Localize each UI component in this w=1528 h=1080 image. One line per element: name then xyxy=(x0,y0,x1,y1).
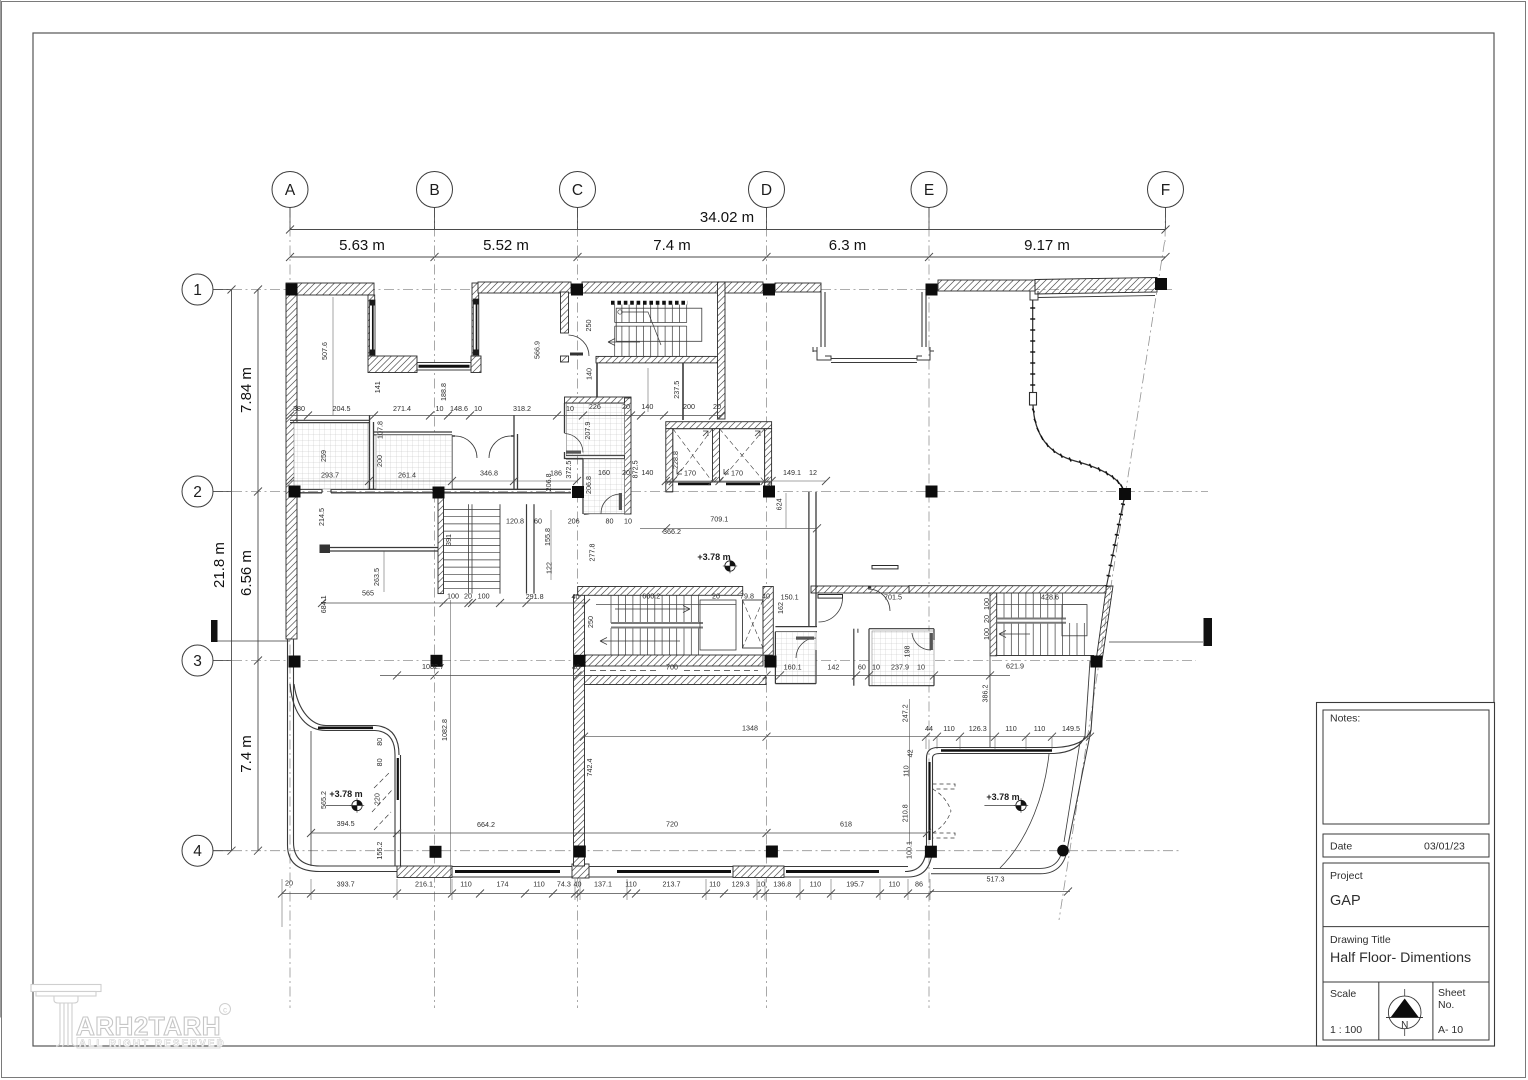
svg-text:Sheet: Sheet xyxy=(1438,987,1466,999)
svg-text:+3.78 m: +3.78 m xyxy=(986,792,1019,802)
svg-text:110: 110 xyxy=(1034,724,1045,733)
svg-text:200: 200 xyxy=(375,455,384,467)
svg-text:141: 141 xyxy=(373,381,382,393)
svg-text:566.9: 566.9 xyxy=(533,341,542,359)
svg-text:261.4: 261.4 xyxy=(398,471,416,480)
svg-text:247.2: 247.2 xyxy=(901,704,910,722)
svg-text:03/01/23: 03/01/23 xyxy=(1424,841,1465,853)
svg-text:20: 20 xyxy=(712,592,720,601)
svg-text:110: 110 xyxy=(810,880,821,889)
svg-text:86: 86 xyxy=(915,880,923,889)
svg-text:206.8: 206.8 xyxy=(584,476,593,494)
svg-text:155.8: 155.8 xyxy=(543,528,552,546)
svg-text:60: 60 xyxy=(858,663,866,672)
svg-text:100: 100 xyxy=(982,598,991,610)
svg-text:100.1: 100.1 xyxy=(904,841,913,859)
svg-text:3: 3 xyxy=(193,653,202,670)
svg-text:10: 10 xyxy=(566,404,574,413)
svg-text:1: 1 xyxy=(193,282,202,299)
svg-text:40: 40 xyxy=(572,663,580,672)
svg-text:80: 80 xyxy=(375,738,384,746)
svg-text:664.2: 664.2 xyxy=(477,820,495,829)
svg-text:126.3: 126.3 xyxy=(969,724,987,733)
svg-text:ALL RIGHT RESERVED: ALL RIGHT RESERVED xyxy=(79,1039,226,1050)
svg-text:E: E xyxy=(924,182,934,199)
svg-text:277.8: 277.8 xyxy=(588,544,597,562)
svg-text:10: 10 xyxy=(917,663,925,672)
svg-text:20: 20 xyxy=(713,402,721,411)
svg-text:140: 140 xyxy=(641,468,653,477)
svg-text:701.5: 701.5 xyxy=(884,593,902,602)
svg-text:+3.78 m: +3.78 m xyxy=(697,552,730,562)
svg-text:Project: Project xyxy=(1330,870,1363,882)
svg-text:A- 10: A- 10 xyxy=(1438,1024,1463,1036)
svg-text:271.4: 271.4 xyxy=(393,404,411,413)
svg-text:206: 206 xyxy=(568,517,580,526)
svg-text:250: 250 xyxy=(584,320,593,332)
svg-text:34.02 m: 34.02 m xyxy=(700,209,754,226)
svg-text:200: 200 xyxy=(683,402,695,411)
svg-text:162: 162 xyxy=(776,602,785,614)
svg-text:259: 259 xyxy=(319,450,328,462)
svg-text:7.4 m: 7.4 m xyxy=(238,735,255,773)
svg-text:346.8: 346.8 xyxy=(480,469,498,478)
svg-text:+3.78 m: +3.78 m xyxy=(329,789,362,799)
svg-text:110: 110 xyxy=(943,724,954,733)
svg-text:20: 20 xyxy=(285,879,293,888)
svg-text:Scale: Scale xyxy=(1330,988,1356,1000)
svg-text:10: 10 xyxy=(757,880,765,889)
svg-text:2: 2 xyxy=(193,484,202,501)
svg-text:213.7: 213.7 xyxy=(663,880,681,889)
svg-text:204.5: 204.5 xyxy=(333,404,351,413)
svg-text:20: 20 xyxy=(622,402,630,411)
svg-text:250: 250 xyxy=(586,616,595,628)
svg-text:700: 700 xyxy=(666,663,678,672)
svg-text:618: 618 xyxy=(840,820,852,829)
svg-text:195.7: 195.7 xyxy=(846,880,864,889)
svg-text:372.5: 372.5 xyxy=(564,461,573,479)
svg-text:1082.7: 1082.7 xyxy=(422,662,444,671)
svg-text:174: 174 xyxy=(497,880,509,889)
svg-text:110: 110 xyxy=(709,880,720,889)
svg-text:GAP: GAP xyxy=(1330,893,1361,909)
svg-text:393.7: 393.7 xyxy=(337,880,355,889)
svg-text:10: 10 xyxy=(872,663,880,672)
svg-text:Notes:: Notes: xyxy=(1330,713,1360,725)
svg-text:5.63 m: 5.63 m xyxy=(339,237,385,254)
svg-text:366.2: 366.2 xyxy=(663,527,681,536)
svg-text:110: 110 xyxy=(889,880,900,889)
svg-text:4: 4 xyxy=(193,843,202,860)
svg-text:136.8: 136.8 xyxy=(773,880,791,889)
svg-text:74.3: 74.3 xyxy=(557,880,571,889)
svg-text:F: F xyxy=(1161,182,1170,199)
svg-text:D: D xyxy=(761,182,772,199)
svg-text:228.8: 228.8 xyxy=(671,451,680,469)
svg-text:428.6: 428.6 xyxy=(1041,593,1059,602)
svg-text:565: 565 xyxy=(362,589,374,598)
svg-text:7.4 m: 7.4 m xyxy=(653,237,691,254)
svg-text:210.8: 210.8 xyxy=(901,804,910,822)
svg-text:7.84 m: 7.84 m xyxy=(238,367,255,413)
svg-text:No.: No. xyxy=(1438,999,1454,1011)
svg-text:40: 40 xyxy=(762,592,770,601)
svg-text:220: 220 xyxy=(373,793,382,805)
svg-text:621.9: 621.9 xyxy=(1006,662,1024,671)
svg-text:10: 10 xyxy=(436,404,444,413)
svg-text:80: 80 xyxy=(606,517,614,526)
svg-text:1348: 1348 xyxy=(742,724,758,733)
svg-text:20: 20 xyxy=(464,592,472,601)
svg-text:226: 226 xyxy=(589,402,601,411)
svg-text:Drawing Title: Drawing Title xyxy=(1330,934,1391,946)
svg-text:600.2: 600.2 xyxy=(642,592,660,601)
svg-text:391: 391 xyxy=(444,534,453,546)
svg-text:110: 110 xyxy=(460,880,471,889)
svg-text:291.8: 291.8 xyxy=(526,592,544,601)
svg-text:10: 10 xyxy=(474,404,482,413)
svg-text:5.52 m: 5.52 m xyxy=(483,237,529,254)
svg-text:40: 40 xyxy=(572,592,580,601)
svg-text:100: 100 xyxy=(982,628,991,640)
svg-text:129.3: 129.3 xyxy=(732,880,750,889)
svg-text:C: C xyxy=(572,182,583,199)
svg-text:110: 110 xyxy=(902,765,911,776)
svg-text:140: 140 xyxy=(641,402,653,411)
svg-text:149.1: 149.1 xyxy=(783,468,801,477)
svg-text:709.1: 709.1 xyxy=(710,515,728,524)
svg-text:742.4: 742.4 xyxy=(585,759,594,777)
svg-text:624: 624 xyxy=(774,498,783,510)
svg-text:c: c xyxy=(223,1006,227,1015)
svg-text:21.8 m: 21.8 m xyxy=(211,542,228,588)
svg-text:ARH2TARH: ARH2TARH xyxy=(76,1011,221,1041)
svg-text:517.3: 517.3 xyxy=(987,875,1005,884)
svg-text:42: 42 xyxy=(906,749,915,757)
svg-text:149.5: 149.5 xyxy=(1062,724,1080,733)
svg-text:380: 380 xyxy=(293,404,305,413)
svg-text:6.56 m: 6.56 m xyxy=(238,550,255,596)
svg-text:237.5: 237.5 xyxy=(672,381,681,399)
svg-text:318.2: 318.2 xyxy=(513,404,531,413)
svg-text:110: 110 xyxy=(1005,724,1016,733)
svg-text:170: 170 xyxy=(731,469,743,478)
svg-text:6.3 m: 6.3 m xyxy=(829,237,867,254)
svg-text:80: 80 xyxy=(375,758,384,766)
svg-text:110: 110 xyxy=(625,880,636,889)
svg-text:20: 20 xyxy=(982,615,991,623)
svg-text:155.2: 155.2 xyxy=(375,842,384,860)
svg-text:20: 20 xyxy=(622,468,630,477)
svg-text:170: 170 xyxy=(684,469,696,478)
svg-text:386.2: 386.2 xyxy=(981,685,990,703)
svg-text:Date: Date xyxy=(1330,841,1352,853)
svg-text:10: 10 xyxy=(624,517,632,526)
svg-text:206.8: 206.8 xyxy=(544,473,553,491)
svg-text:1 : 100: 1 : 100 xyxy=(1330,1024,1362,1036)
svg-text:872.5: 872.5 xyxy=(631,460,640,478)
svg-text:N: N xyxy=(1401,1020,1408,1031)
svg-text:160: 160 xyxy=(598,468,610,477)
svg-text:137.1: 137.1 xyxy=(594,880,612,889)
svg-text:394.5: 394.5 xyxy=(337,819,355,828)
svg-text:122: 122 xyxy=(545,562,554,574)
svg-text:293.7: 293.7 xyxy=(321,471,339,480)
svg-text:107.8: 107.8 xyxy=(376,421,385,439)
svg-text:79.8: 79.8 xyxy=(740,592,754,601)
svg-text:263.5: 263.5 xyxy=(372,568,381,586)
svg-text:142: 142 xyxy=(827,663,839,672)
svg-text:40: 40 xyxy=(574,880,582,889)
svg-text:B: B xyxy=(429,182,439,199)
svg-text:684.1: 684.1 xyxy=(319,595,328,613)
svg-text:148.6: 148.6 xyxy=(450,404,468,413)
svg-text:Half Floor- Dimentions: Half Floor- Dimentions xyxy=(1330,950,1471,966)
svg-text:216.1: 216.1 xyxy=(415,880,433,889)
svg-text:12: 12 xyxy=(809,468,817,477)
svg-text:207.9: 207.9 xyxy=(583,422,592,440)
svg-text:100: 100 xyxy=(447,592,459,601)
svg-text:720: 720 xyxy=(666,820,678,829)
svg-text:160.1: 160.1 xyxy=(784,663,802,672)
svg-text:110: 110 xyxy=(533,880,544,889)
svg-text:214.5: 214.5 xyxy=(317,508,326,526)
svg-text:140: 140 xyxy=(585,368,594,380)
svg-text:44: 44 xyxy=(925,724,933,733)
svg-text:198: 198 xyxy=(902,646,911,658)
svg-text:9.17 m: 9.17 m xyxy=(1024,237,1070,254)
svg-text:237.9: 237.9 xyxy=(891,663,909,672)
svg-text:188.8: 188.8 xyxy=(439,383,448,401)
svg-text:507.6: 507.6 xyxy=(320,342,329,360)
svg-text:565.2: 565.2 xyxy=(319,791,328,809)
svg-text:A: A xyxy=(285,182,296,199)
svg-text:150.1: 150.1 xyxy=(781,593,799,602)
svg-text:1082.8: 1082.8 xyxy=(440,719,449,741)
svg-text:120.8: 120.8 xyxy=(506,517,524,526)
svg-text:100: 100 xyxy=(478,592,490,601)
svg-text:60: 60 xyxy=(534,517,542,526)
